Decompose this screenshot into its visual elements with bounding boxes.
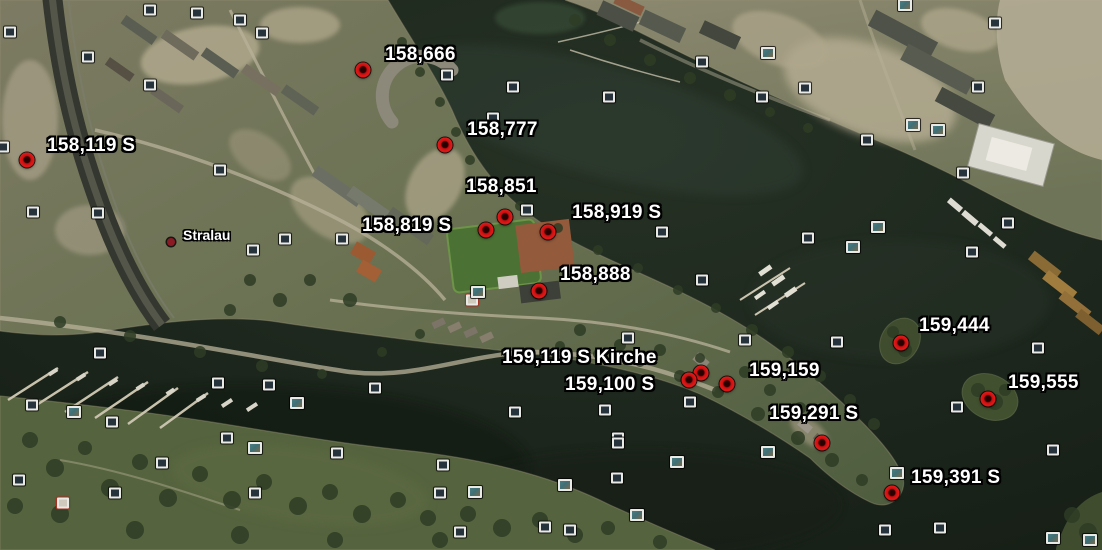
place-dot [167,238,175,246]
km-label[interactable]: 159,291 S [769,404,858,423]
km-label[interactable]: 158,119 S [47,136,135,155]
place-label: Stralau [183,228,230,242]
km-label[interactable]: 158,919 S [572,203,661,222]
km-label[interactable]: 159,100 S [565,375,654,394]
km-label[interactable]: 159,391 S [911,468,1000,487]
km-label[interactable]: 159,555 [1008,373,1079,392]
km-label[interactable]: 158,777 [467,120,538,139]
satellite-map-viewport[interactable]: 158,119 S158,666158,777158,851158,819 S1… [0,0,1102,550]
km-label[interactable]: 159,119 S Kirche [502,348,657,367]
km-label[interactable]: 159,159 [749,361,820,380]
km-label[interactable]: 159,444 [919,316,990,335]
km-label[interactable]: 158,666 [385,45,456,64]
labels-layer: 158,119 S158,666158,777158,851158,819 S1… [0,0,1102,550]
km-label[interactable]: 158,819 S [362,216,451,235]
km-label[interactable]: 158,851 [466,177,537,196]
km-label[interactable]: 158,888 [560,265,631,284]
